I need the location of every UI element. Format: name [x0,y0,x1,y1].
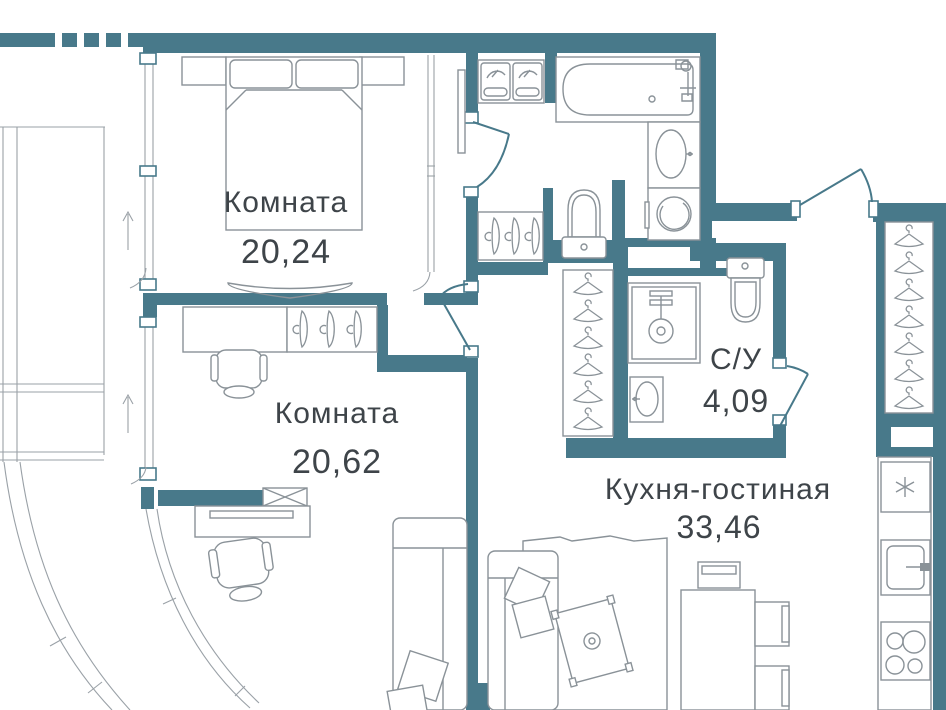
bedroom-label: Комната [224,186,348,219]
bathroom-sink [648,122,700,188]
bedroom-area: 20,24 [241,233,331,271]
nightstand [360,57,404,85]
coffee-table [551,595,633,687]
dining-table [681,590,755,710]
stove [881,622,930,680]
sofa [488,551,558,710]
nightstand [182,57,226,85]
double-vanity [478,60,544,103]
bathroom-area: 4,09 [703,383,769,419]
kitchen-area: 33,46 [676,509,761,545]
kitchen-sink [881,540,930,595]
mirror [458,70,465,153]
living-room [488,536,789,710]
balcony-outline [0,127,130,710]
office-chair [211,350,267,398]
fridge [881,462,930,512]
dining-set [681,562,789,710]
bedroom-window [130,53,156,290]
kitchen-label: Кухня-гостиная [605,473,831,506]
bathroom-label: С/У [710,343,762,376]
room-bathroom-main [478,57,700,260]
office-chair2 [207,536,277,605]
kitchen-counter [878,457,931,710]
shower [628,283,700,363]
shoe-cabinet [478,212,543,260]
hanger-rack [287,307,377,352]
entry-wardrobe [885,222,933,413]
washing-machine [645,188,700,240]
floor-plan-drawing: Комната 20,24 Комната 20,62 С/У 4,09 Кух… [0,0,946,710]
hall-wardrobe [563,270,613,436]
toilet2 [727,258,764,322]
small-sink [630,377,663,422]
bedroom2-area: 20,62 [292,443,382,481]
floor-plan: Комната 20,24 Комната 20,62 С/У 4,09 Кух… [0,0,946,710]
desk [183,307,287,352]
desk2 [195,506,310,537]
balcony-arrow-icon [123,212,133,433]
bathtub [556,57,700,122]
sofa2 [387,518,467,710]
ventilation-shaft [263,488,307,506]
bedroom-partition [413,55,435,291]
toilet [562,190,606,258]
bedroom2-label: Комната [275,397,399,430]
